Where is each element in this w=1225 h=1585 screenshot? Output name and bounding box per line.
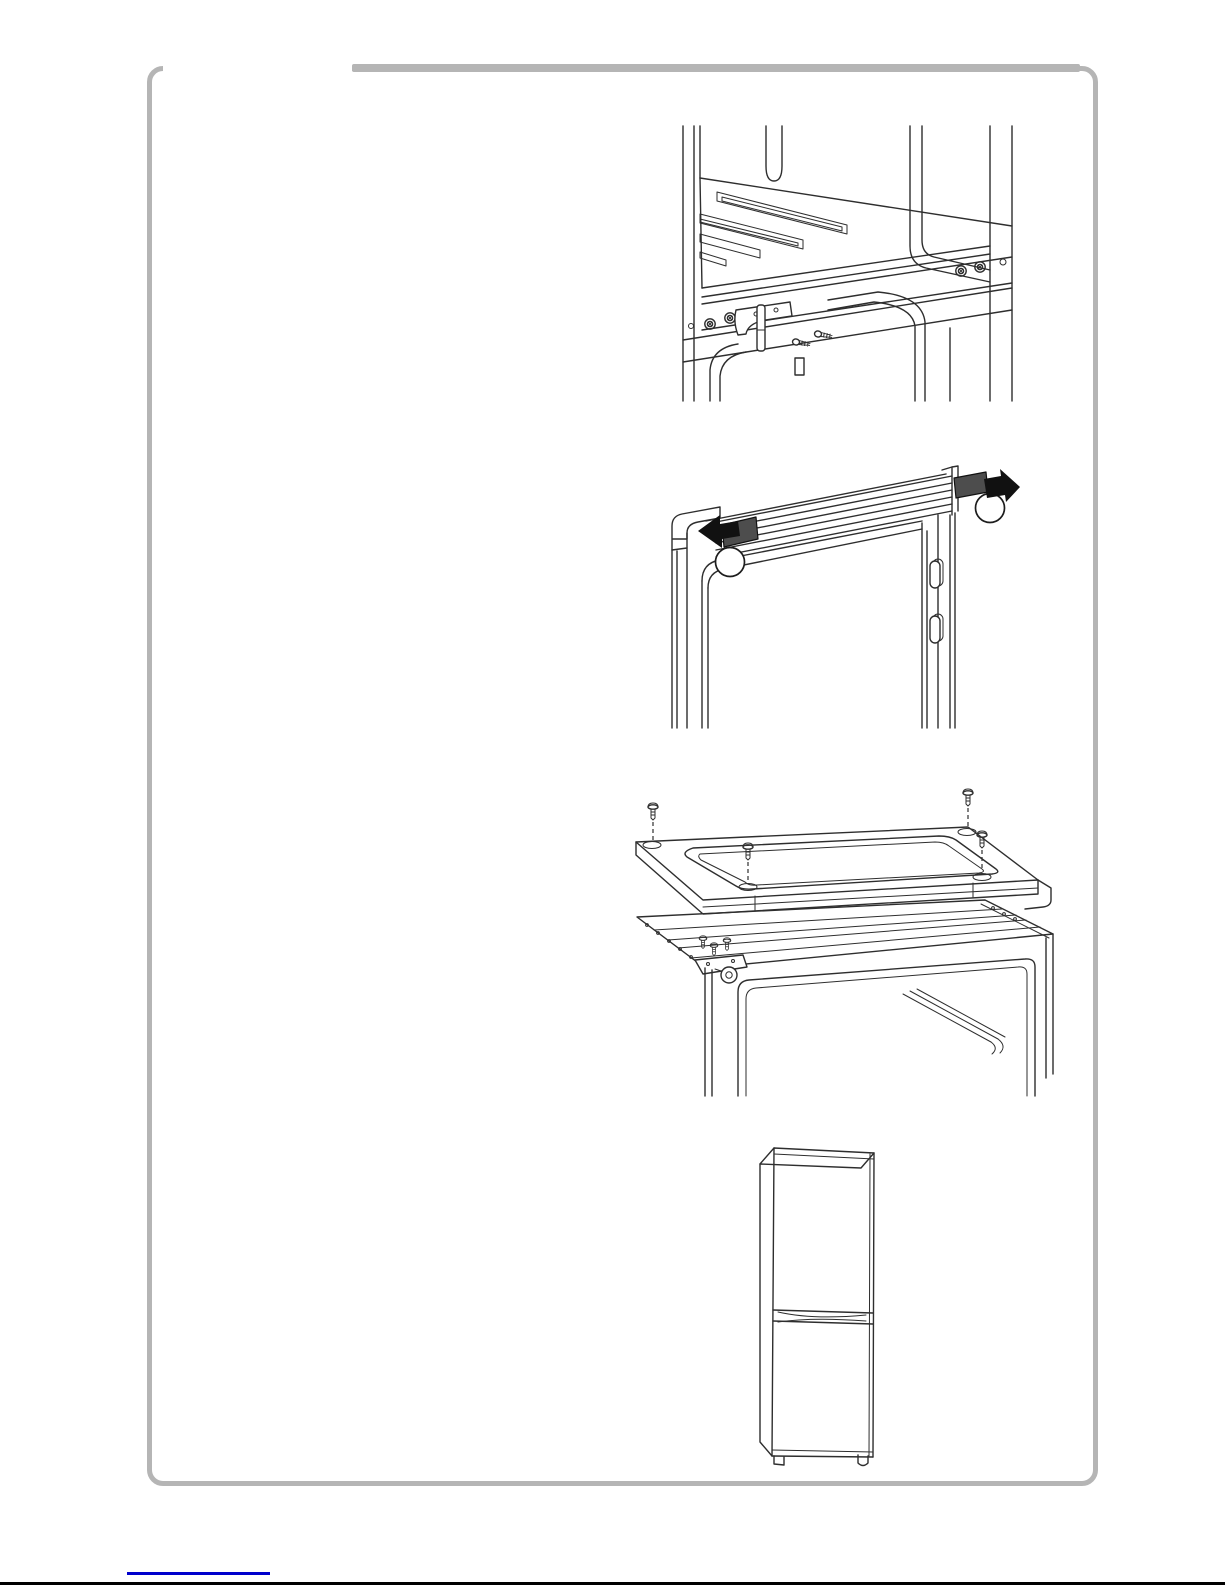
cabinet-front [705,934,1053,1096]
door-panel-lines [672,513,955,728]
screw-head-icon [705,319,715,329]
shelf [700,178,1012,297]
hinge-pin [757,305,765,351]
hinge-slot [930,561,940,588]
arrow-right-icon [984,469,1020,502]
top-cover [636,827,1051,914]
callout-circle [716,548,745,577]
front-rails [683,257,1012,362]
right-hole-cap [954,472,988,498]
figure-assembled-fridge [748,1138,883,1478]
figure-interior-hinge [678,118,1018,403]
screw-head-icon [725,313,735,323]
door-divider [773,1310,873,1324]
figure-top-cover-screws [605,778,1070,1098]
screw-icon [648,803,658,820]
callout-circle [976,494,1005,523]
door-top-rail [706,466,958,557]
spacer-part [795,358,804,375]
shelf-vent-slots [700,192,847,266]
screw-head-icon [956,266,966,276]
fridge-body [760,1148,874,1457]
loose-screw-icon [814,330,832,339]
hinge-slot [930,616,940,643]
manual-page: { "page": { "background": "#ffffff", "bo… [0,0,1225,1585]
header-rule [352,64,1080,72]
figure-door-top-caps [660,455,1030,730]
page-border-gap [163,62,352,76]
fridge-base [772,1450,873,1466]
cabinet-top [637,900,1053,983]
footer-link-underline[interactable] [127,1572,270,1575]
screw-icon [963,789,973,806]
